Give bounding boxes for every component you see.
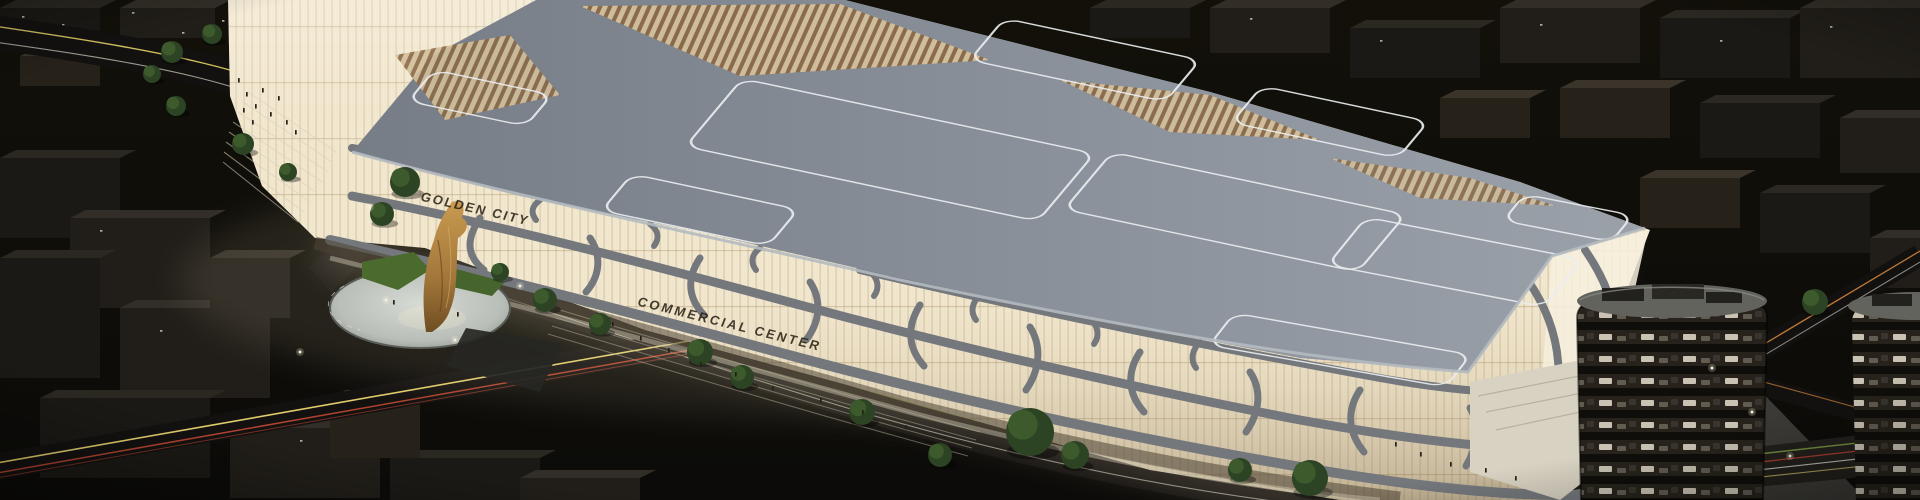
night-aerial-rendering: GOLDEN CITY COMMERCIAL CENTER: [0, 0, 1920, 500]
tower-right: [1848, 292, 1920, 500]
tower-left: [1577, 284, 1767, 500]
rendering-canvas: [0, 0, 1920, 500]
residential-towers: [1577, 284, 1920, 500]
